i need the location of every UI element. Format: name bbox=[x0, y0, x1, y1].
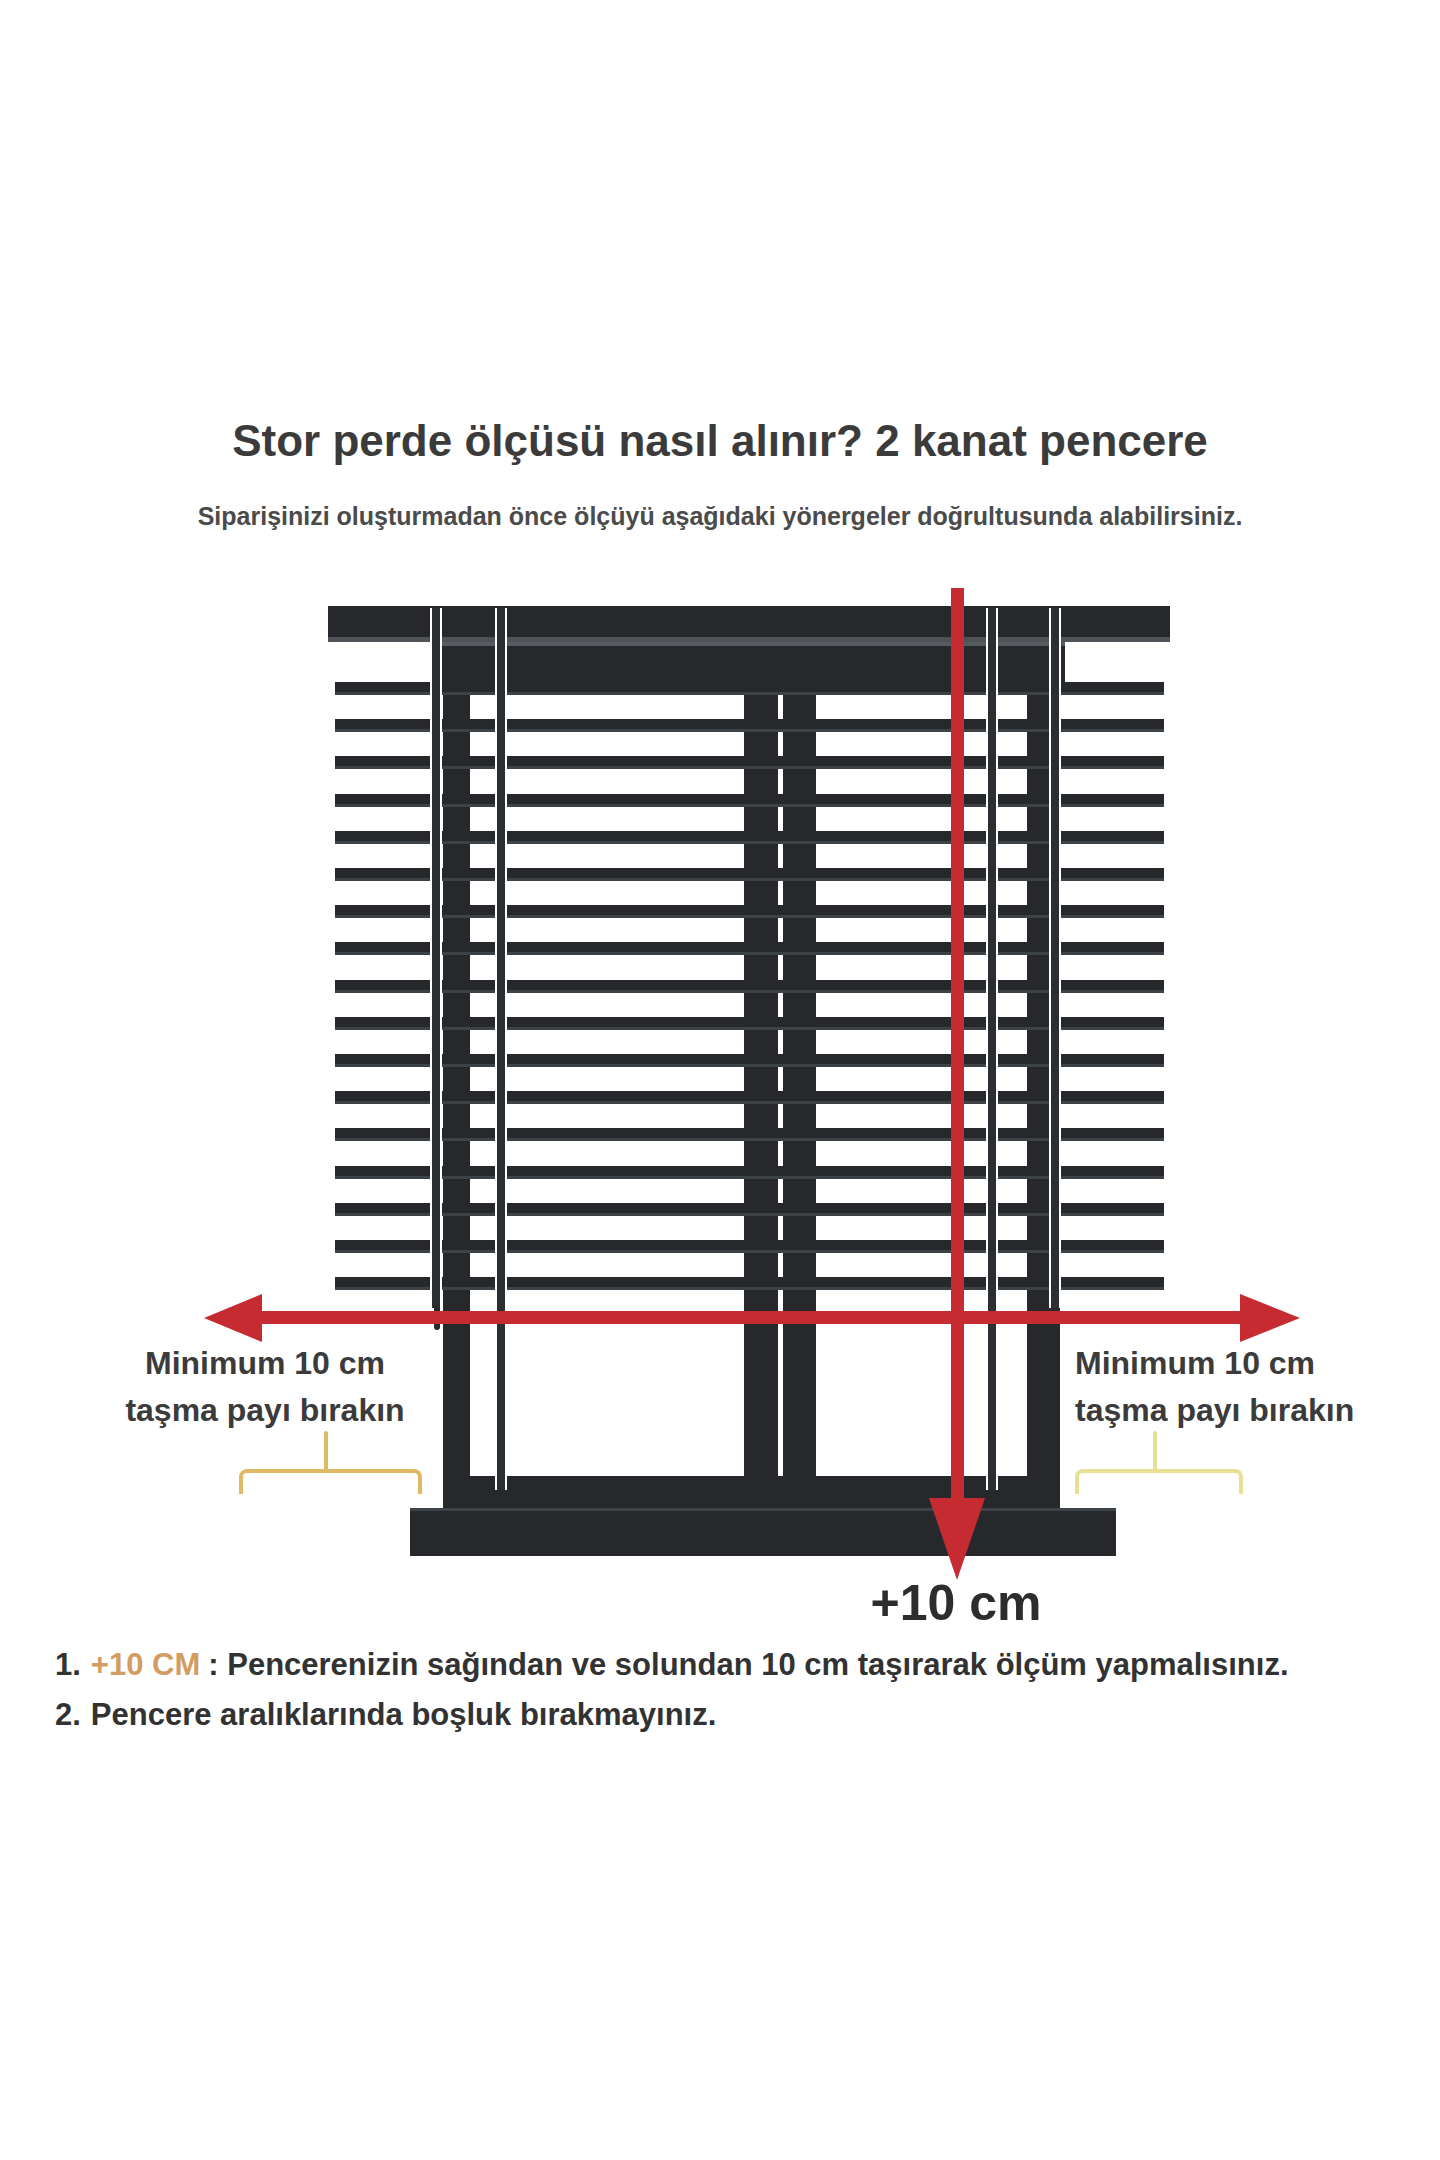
blind-ladder-tape-right-inner bbox=[986, 608, 998, 1490]
instruction-1-number: 1. bbox=[55, 1647, 81, 1682]
blind-slat bbox=[335, 980, 1164, 993]
instruction-2-number: 2. bbox=[55, 1697, 81, 1732]
width-arrow-line bbox=[260, 1311, 1240, 1324]
blind-ladder-tape-left-inner bbox=[495, 608, 507, 1490]
overhang-brace-right-stem bbox=[1153, 1431, 1157, 1471]
blind-slat bbox=[335, 1017, 1164, 1030]
instruction-1-highlight: +10 CM bbox=[91, 1647, 200, 1682]
overhang-label-left: Minimum 10 cm taşma payı bırakın bbox=[95, 1340, 435, 1434]
blind-slat bbox=[335, 868, 1164, 881]
overhang-label-right: Minimum 10 cm taşma payı bırakın bbox=[1075, 1340, 1415, 1434]
overhang-brace-right bbox=[1075, 1469, 1243, 1494]
blind-slat bbox=[335, 1203, 1164, 1216]
page-subtitle: Siparişinizi oluşturmadan önce ölçüyü aş… bbox=[0, 502, 1440, 531]
measurement-guide-page: Stor perde ölçüsü nasıl alınır? 2 kanat … bbox=[0, 0, 1440, 2160]
instruction-item-1: 1.+10 CM: Pencerenizin sağından ve solun… bbox=[55, 1640, 1425, 1690]
instruction-1-text: : Pencerenizin sağından ve solundan 10 c… bbox=[208, 1647, 1288, 1682]
blind-slat bbox=[335, 831, 1164, 844]
blind-slat bbox=[335, 1277, 1164, 1290]
blind-slat bbox=[335, 1054, 1164, 1067]
blind-headrail bbox=[328, 606, 1170, 642]
blind-slat bbox=[335, 756, 1164, 769]
window-left-post bbox=[443, 646, 470, 1490]
overhang-label-right-line2: taşma payı bırakın bbox=[1075, 1387, 1415, 1434]
blind-ladder-tape-left-outer bbox=[430, 608, 442, 1308]
height-arrow-down-head bbox=[929, 1498, 985, 1580]
width-arrow-right-head bbox=[1240, 1294, 1300, 1342]
blind-slat bbox=[335, 942, 1164, 955]
blind-slat bbox=[335, 1128, 1164, 1141]
width-arrow-left-head bbox=[204, 1294, 262, 1342]
overhang-brace-left bbox=[239, 1469, 422, 1494]
instruction-item-2: 2.Pencere aralıklarında boşluk bırakmayı… bbox=[55, 1690, 1425, 1740]
page-title: Stor perde ölçüsü nasıl alınır? 2 kanat … bbox=[0, 416, 1440, 466]
instruction-2-text: Pencere aralıklarında boşluk bırakmayını… bbox=[91, 1697, 716, 1732]
blind-slat bbox=[335, 905, 1164, 918]
window-center-mullion bbox=[744, 646, 816, 1490]
blind-slat bbox=[335, 682, 1164, 695]
overhang-brace-left-stem bbox=[324, 1431, 328, 1471]
blind-slat bbox=[335, 1091, 1164, 1104]
height-arrow-line bbox=[951, 588, 964, 1500]
instruction-list: 1.+10 CM: Pencerenizin sağından ve solun… bbox=[55, 1640, 1425, 1740]
window-sill bbox=[410, 1508, 1116, 1556]
blind-slat bbox=[335, 794, 1164, 807]
blind-ladder-tape-right-outer bbox=[1049, 608, 1061, 1308]
blind-slat bbox=[335, 719, 1164, 732]
overhang-label-right-line1: Minimum 10 cm bbox=[1075, 1340, 1415, 1387]
plus-10-cm-label: +10 cm bbox=[800, 1574, 1112, 1632]
blind-slat bbox=[335, 1166, 1164, 1179]
overhang-label-left-line2: taşma payı bırakın bbox=[95, 1387, 435, 1434]
overhang-label-left-line1: Minimum 10 cm bbox=[95, 1340, 435, 1387]
blind-slat bbox=[335, 1240, 1164, 1253]
